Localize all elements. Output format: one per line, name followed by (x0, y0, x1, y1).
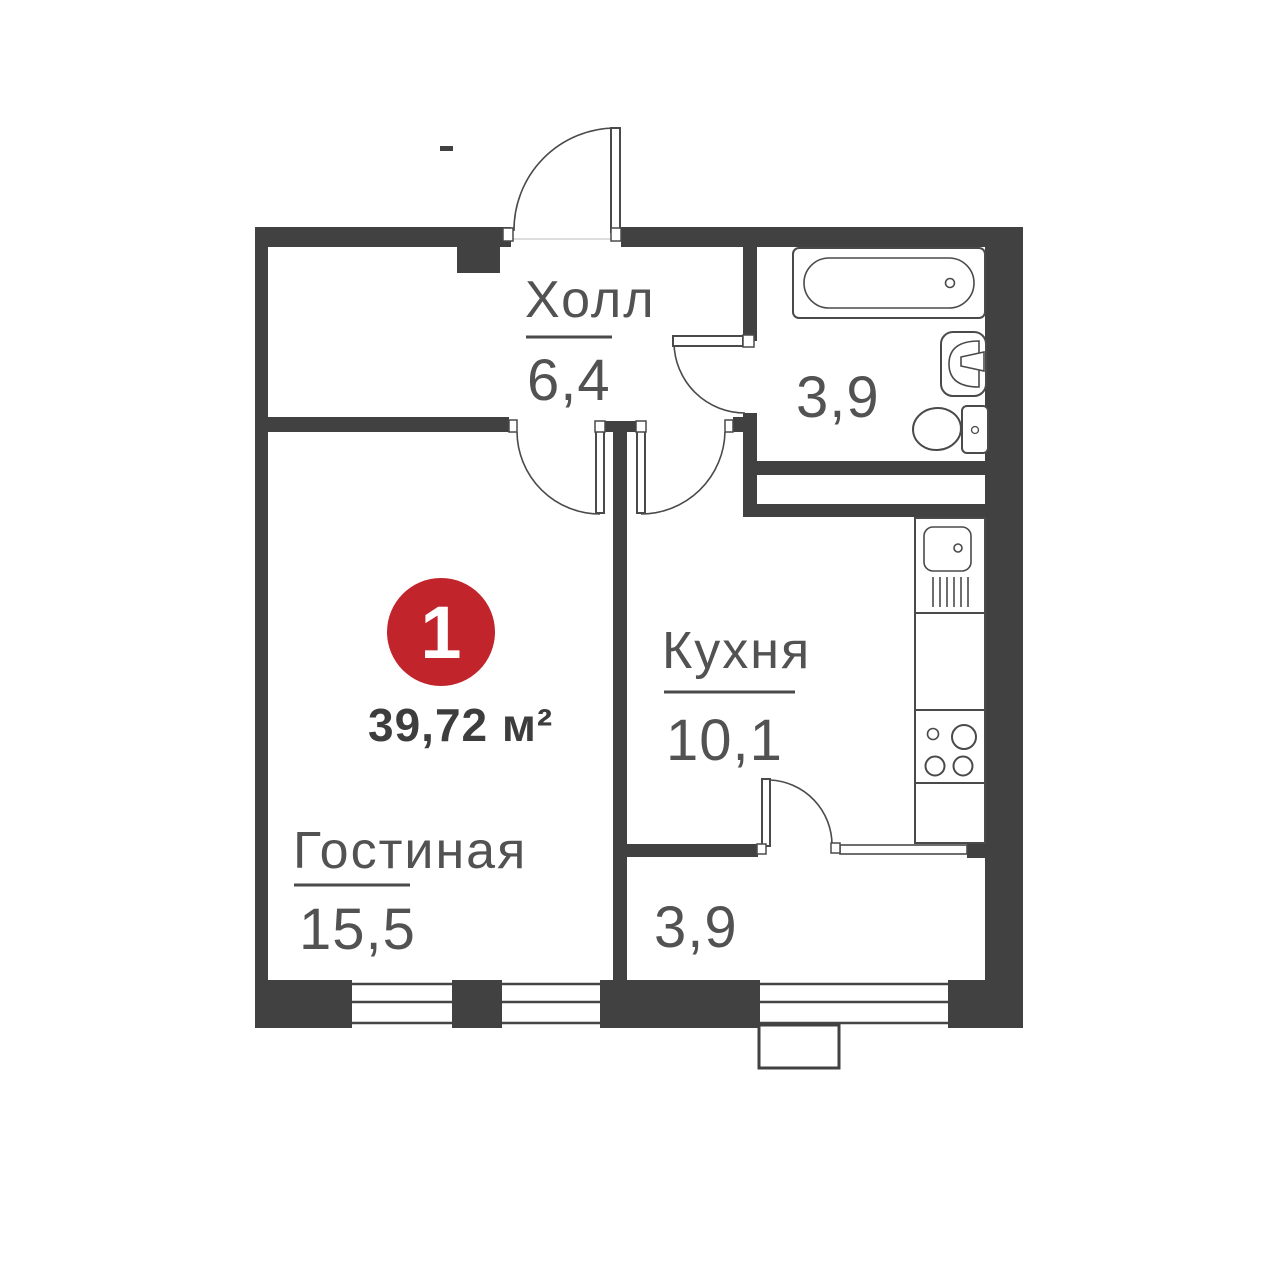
kitchen-fixtures (915, 518, 985, 843)
wash-basin-icon (941, 332, 986, 396)
entrance-door (503, 128, 621, 241)
unit-badge: 1 (387, 578, 495, 686)
floor-plan: Холл 6,4 3,9 Кухня 10,1 Гостиная 15,5 3,… (0, 0, 1280, 1280)
door-jamb (611, 228, 621, 241)
door-swing-arc (517, 432, 600, 514)
door-swing-arc (770, 780, 832, 845)
door-leaf (673, 336, 743, 346)
door-swing-arc (641, 432, 725, 514)
door-jamb (757, 844, 766, 854)
kitchen-door (636, 420, 733, 514)
door-leaf (596, 427, 604, 513)
hall-name-label: Холл (525, 271, 656, 329)
wall-living-kitchen (613, 432, 627, 980)
kitchen-counter-lower (915, 783, 985, 843)
bathroom-area-label: 3,9 (796, 365, 880, 430)
stove-icon (915, 710, 985, 783)
window-living-left (352, 980, 452, 1027)
window-living-right (502, 980, 600, 1027)
wall-center-stub (604, 421, 637, 432)
door-jamb (636, 421, 646, 432)
window-pane (760, 980, 948, 1027)
kitchen-sink-icon (915, 518, 985, 613)
kitchen-name-label: Кухня (662, 622, 811, 680)
living-name-label: Гостиная (293, 822, 527, 880)
door-swing-arc (514, 128, 615, 231)
wall-hall-living (268, 417, 509, 432)
door-jamb (509, 420, 517, 432)
door-leaf (762, 779, 770, 846)
balcony-outline (759, 1025, 839, 1068)
wall-shaft-top (743, 461, 990, 475)
wall-bathroom-left-lower (743, 413, 757, 461)
window-corridor (760, 980, 948, 1027)
door-leaf (637, 427, 645, 513)
door-swing-arc (674, 343, 745, 413)
wall-bottom-middle (600, 980, 760, 1028)
living-room-door (509, 420, 605, 514)
wall-corridor-top (627, 844, 758, 857)
bathtub-icon (793, 248, 985, 318)
door-jamb (831, 843, 840, 853)
kitchen-counter (915, 613, 985, 710)
hall-area-label: 6,4 (527, 348, 611, 413)
room-labels: Холл 6,4 3,9 Кухня 10,1 Гостиная 15,5 3,… (293, 271, 880, 962)
partition-glazing (840, 845, 967, 854)
corridor-area-label: 3,9 (654, 895, 738, 960)
living-area-label: 15,5 (299, 897, 416, 962)
wall-right (985, 227, 1023, 1028)
door-jamb (595, 421, 605, 432)
stray-mark (440, 146, 453, 151)
window-pane (352, 980, 452, 1027)
wall-bottom-corner-right (948, 980, 1023, 1028)
wall-bottom-corner-left (255, 980, 352, 1028)
corridor-door (757, 779, 840, 854)
floor-plan-canvas: Холл 6,4 3,9 Кухня 10,1 Гостиная 15,5 3,… (0, 0, 1280, 1280)
wall-shaft-bottom (743, 504, 990, 517)
wall-left (255, 227, 268, 1028)
badge-number: 1 (420, 591, 461, 674)
door-jamb (743, 335, 754, 347)
kitchen-area-label: 10,1 (666, 708, 783, 773)
toilet-icon (911, 406, 988, 453)
bathroom-door (673, 335, 754, 413)
wall-top-left (255, 227, 511, 247)
wall-bathroom-left-upper (743, 247, 757, 341)
wall-bottom-pier (452, 980, 502, 1028)
window-pane (502, 980, 600, 1027)
wall-pier-entry (457, 247, 500, 273)
door-leaf (611, 128, 620, 232)
wall-shaft-cap (743, 475, 757, 504)
total-area-label: 39,72 м² (368, 699, 553, 751)
door-jamb (503, 228, 513, 241)
wall-top-right (621, 227, 1023, 247)
door-jamb (725, 420, 733, 432)
